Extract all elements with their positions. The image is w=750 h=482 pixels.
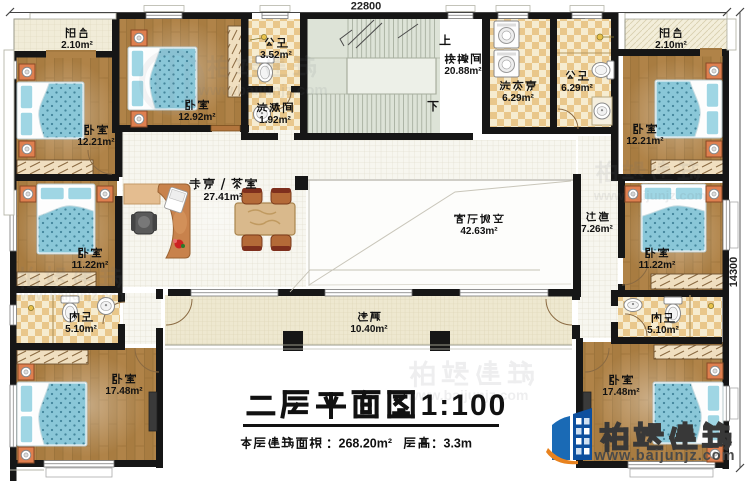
svg-text:10.40m²: 10.40m² — [350, 324, 388, 335]
svg-text:12.21m²: 12.21m² — [77, 137, 115, 148]
svg-text:2.10m²: 2.10m² — [655, 40, 687, 51]
svg-text:5.10m²: 5.10m² — [647, 325, 679, 336]
svg-text:20.88m²: 20.88m² — [444, 66, 482, 77]
svg-text:12.92m²: 12.92m² — [178, 112, 216, 123]
svg-text:5.10m²: 5.10m² — [65, 324, 97, 335]
svg-text:7.26m²: 7.26m² — [581, 224, 613, 235]
svg-text:12.21m²: 12.21m² — [626, 136, 664, 147]
svg-text:14300: 14300 — [728, 257, 740, 288]
svg-text:6.29m²: 6.29m² — [502, 93, 534, 104]
svg-text:www.baijunjz.com: www.baijunjz.com — [15, 288, 128, 303]
svg-text:11.22m²: 11.22m² — [639, 260, 676, 271]
svg-text:6.29m²: 6.29m² — [561, 83, 593, 94]
svg-text:17.48m²: 17.48m² — [602, 387, 640, 398]
svg-text:www.baijunjz.com: www.baijunjz.com — [593, 188, 706, 203]
svg-text:www.baijunjz.com: www.baijunjz.com — [197, 82, 327, 99]
svg-text:1.92m²: 1.92m² — [259, 115, 291, 126]
svg-text:：3.3m: ：3.3m — [431, 437, 472, 451]
svg-text:1:100: 1:100 — [421, 389, 508, 422]
svg-text:www.baijunjz.com: www.baijunjz.com — [593, 448, 735, 464]
svg-text:17.48m²: 17.48m² — [105, 386, 143, 397]
svg-text:27.41m²: 27.41m² — [203, 191, 243, 203]
svg-text:22800: 22800 — [351, 1, 382, 13]
svg-text:：268.20m²: ：268.20m² — [326, 437, 392, 451]
svg-text:2.10m²: 2.10m² — [61, 40, 93, 51]
svg-text:42.63m²: 42.63m² — [460, 226, 498, 237]
